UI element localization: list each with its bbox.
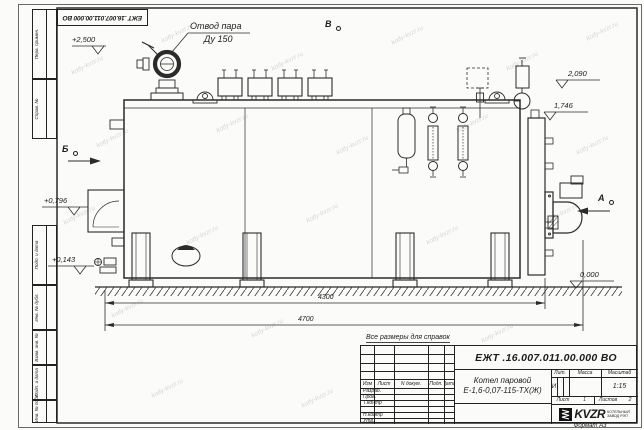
margin-label: Инв. № подл. [34, 401, 39, 422]
elevation-0796: +0,796 [44, 196, 67, 205]
margin-label: Инв. № дубл. [34, 286, 39, 329]
kvzr-logo-icon [559, 408, 572, 421]
company-cell: KVZR КОТЕЛЬНЫЙ ЗАВОД РЭП [551, 404, 638, 424]
dimension-4700: 4700 [298, 316, 314, 323]
company-tagline: КОТЕЛЬНЫЙ ЗАВОД РЭП [607, 410, 630, 418]
margin-label: Справ. № [34, 80, 39, 138]
reference-note: Все размеры для справок [366, 334, 450, 343]
company-tagline-2: ЗАВОД РЭП [607, 414, 628, 418]
col-podp: Подп. [428, 379, 444, 388]
ground-line [95, 287, 622, 296]
sheets-value: 2 [622, 396, 638, 404]
view-circle-b [73, 151, 78, 156]
margin-label: Перв. примен. [34, 10, 39, 78]
view-label-b: Б [62, 144, 68, 154]
col-ndoc: N докум. [394, 379, 428, 388]
scale-value: 1:15 [601, 377, 638, 396]
steam-callout-line2: Ду 150 [204, 34, 232, 44]
col-data: Дата [444, 379, 454, 388]
top-right-fittings [467, 58, 530, 118]
titleblock-designation: ЕЖТ .16.007.011.00.000 ВО [454, 346, 638, 369]
elevation-2090: 2,090 [568, 69, 587, 78]
margin-label: Взам. инв. № [34, 331, 39, 364]
front-fittings [95, 120, 125, 273]
view-circle-v [336, 26, 341, 31]
elevation-0143: +0,143 [52, 255, 75, 264]
col-izm: Изм [361, 379, 374, 388]
row-tkontr: Т.контр [361, 400, 387, 406]
titleblock-doc-name: Котел паровой Е-1,6-0,07-115-ТХ(Ж) [454, 369, 551, 403]
view-label-a: А [598, 193, 605, 203]
steam-callout-line1: Отвод пара [190, 21, 241, 31]
scale-header: Масштаб [601, 369, 638, 377]
elevation-1746: 1,746 [554, 101, 573, 110]
view-circle-a [609, 200, 614, 205]
sheet-label: Лист [551, 396, 575, 404]
doc-name-line2: Е-1,6-0,07-115-ТХ(Ж) [463, 386, 541, 396]
row-utv: Утв. [361, 418, 387, 424]
front-smokebox [88, 190, 124, 232]
elevation-2500: +2,500 [72, 35, 95, 44]
doc-name-line1: Котел паровой [474, 376, 531, 386]
steam-valve [137, 42, 183, 100]
view-arrows [68, 158, 610, 215]
company-name: KVZR [574, 407, 605, 421]
level-gauges [392, 107, 468, 177]
corner-stamp: ЕЖТ .16.007.011.00.000 ВО [57, 9, 148, 26]
margin-label: Подп. и дата [34, 226, 39, 284]
lifting-lugs [193, 92, 509, 103]
elevation-0000: 0,000 [580, 270, 599, 279]
drawing-sheet: kotly-kvzr.ru kotly-kvzr.ru kotly-kvzr.r… [0, 0, 644, 430]
corner-stamp-designation: ЕЖТ .16.007.011.00.000 ВО [63, 14, 142, 21]
format-label: Формат А3 [540, 423, 640, 429]
view-label-v: В [325, 19, 332, 29]
top-hatches [218, 70, 332, 100]
boiler-shell [124, 100, 520, 278]
dimension-lines [105, 240, 583, 331]
lit-header: Лит. [551, 369, 569, 377]
sheet-value: 1 [575, 396, 594, 404]
support-legs [129, 233, 512, 287]
dimension-4300: 4300 [318, 294, 334, 301]
lit-value: И [551, 377, 557, 396]
burner-assembly [528, 110, 583, 275]
manhole [172, 245, 200, 266]
massa-header: Масса [569, 369, 601, 377]
col-list: Лист [374, 379, 394, 388]
sheets-label: Листов [594, 396, 622, 404]
title-block: ЕЖТ .16.007.011.00.000 ВО Котел паровой … [360, 345, 637, 423]
